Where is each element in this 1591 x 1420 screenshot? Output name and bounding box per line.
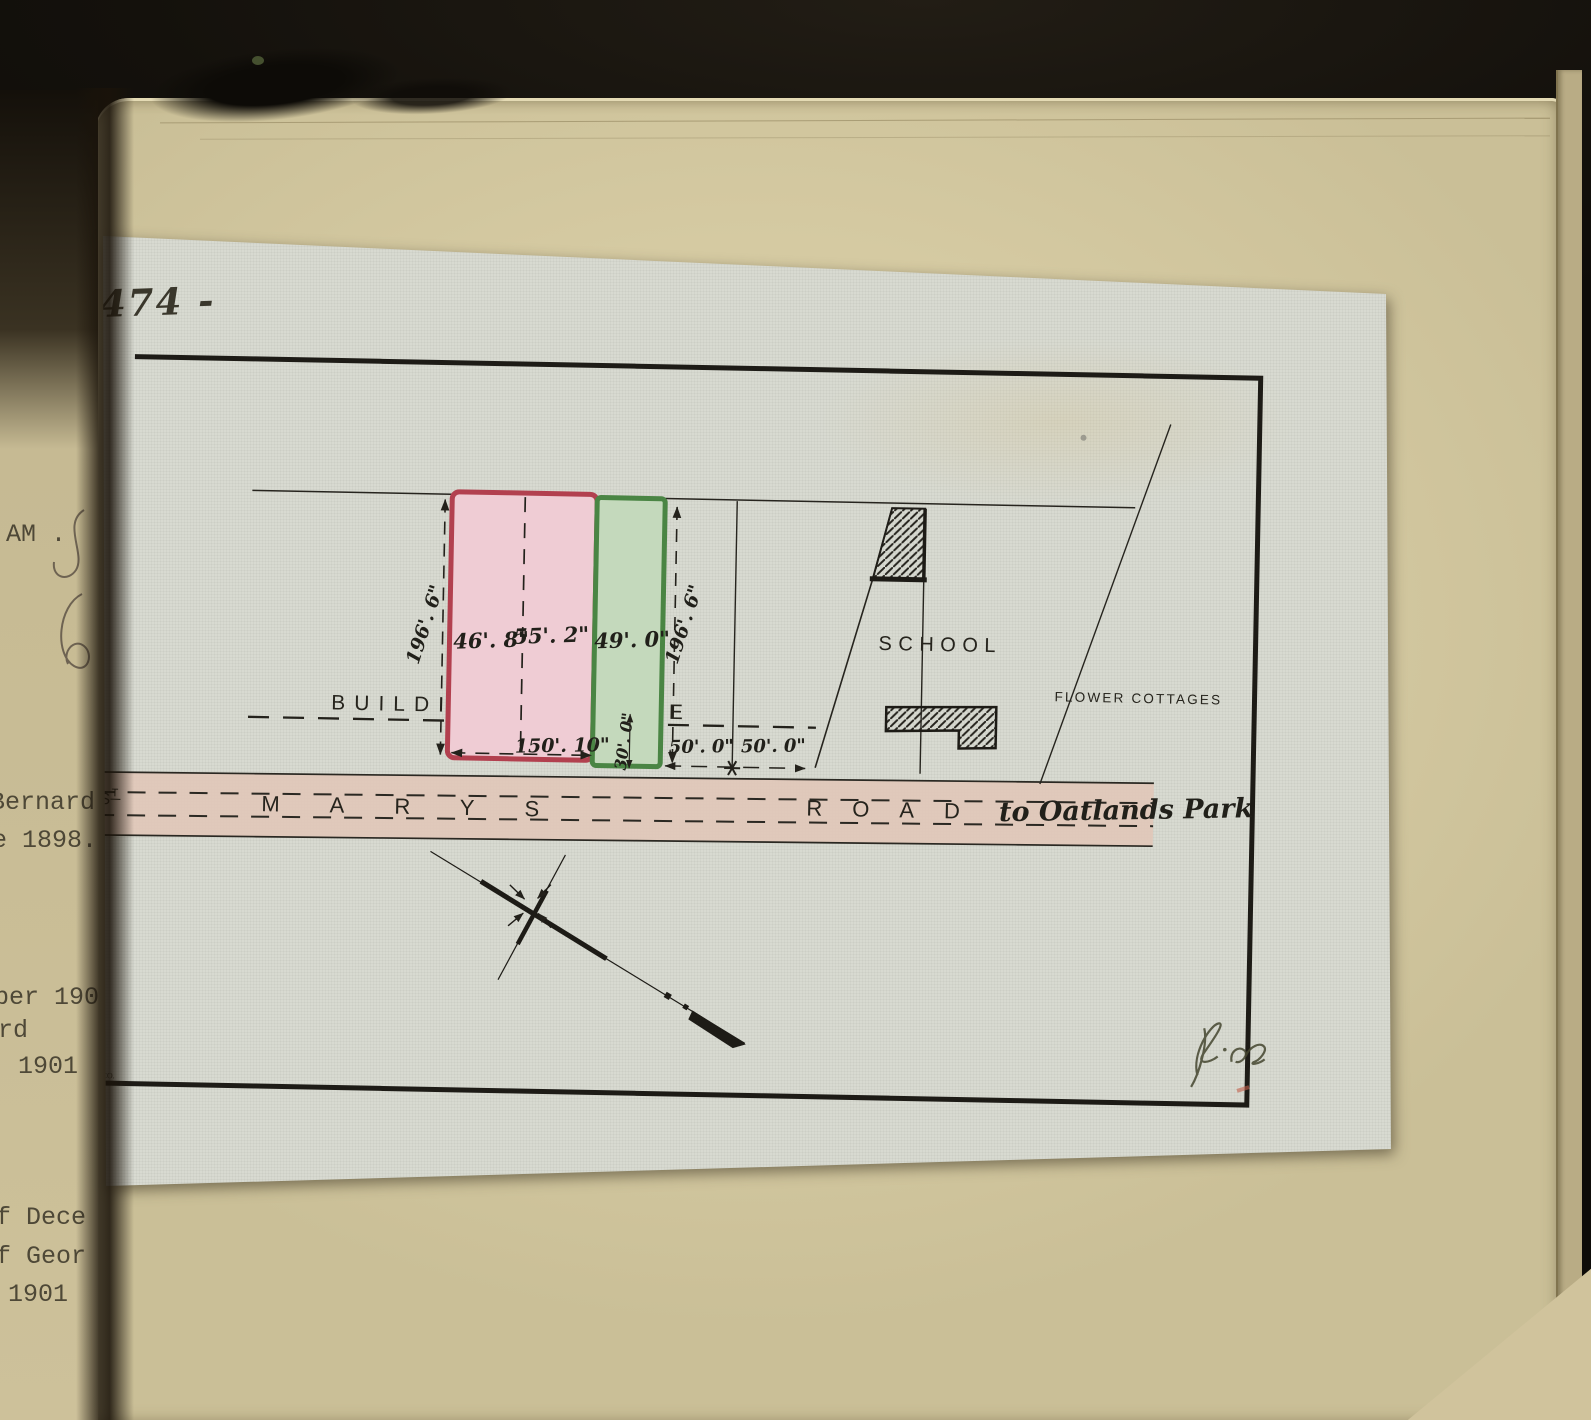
plan-sheet: 474 - [100,228,1395,1195]
plan-sheet-wrap: 474 - [100,228,1395,1195]
ink-dot [1080,435,1086,441]
gutter-shadow [76,88,134,1420]
dim-frontage: 150'. 10" [515,734,610,757]
page-stack-right-edge [1556,70,1582,1420]
road-destination-label: to Oatlands Park [999,793,1254,828]
dim-depth-right: 196'. 6" [661,582,707,667]
north-arrow [427,851,750,1048]
site-plan: S T MARYS ROAD to Oatlands Park BUILDING… [91,352,1275,1114]
dim-depth-left: 196'. 6" [402,582,448,667]
rear-boundary-line [252,490,1135,507]
school-building-north-base [870,579,927,580]
typewritten-fragment: rd [0,1016,28,1045]
dim-gap-east: 50'. 0" [741,735,806,757]
school-building-north-east-wall [924,509,925,580]
school-label: SCHOOL [878,633,1002,657]
road-label-road: ROAD [806,796,990,825]
typewritten-fragment: 1901 [18,1052,78,1081]
typewritten-fragment: 1901 [8,1280,68,1309]
dim-lot-55: 55'. 2" [513,621,590,649]
dim-gap-west: 50'. 0" [669,736,734,758]
plot-boundary-line [732,501,737,768]
flower-cottages-boundary [1040,422,1171,786]
paper-speck [252,56,264,65]
arrowhead [688,1010,747,1048]
school-fence-line [920,580,924,774]
signature-mark [1191,1023,1265,1089]
school-building-south [886,705,997,749]
school-building-north [873,508,925,580]
flower-cottages-label: FLOWER COTTAGES [1054,689,1222,707]
typewritten-fragment: f Dece [0,1203,86,1232]
dim-lot-49: 49'. 0" [594,626,671,654]
typewritten-fragment: f Geor [0,1242,86,1271]
photo-backdrop: AM . Bernard e 1898. ber 190 rd 1901 f D… [0,0,1591,1420]
road: S T MARYS ROAD to Oatlands Park [96,763,1254,857]
